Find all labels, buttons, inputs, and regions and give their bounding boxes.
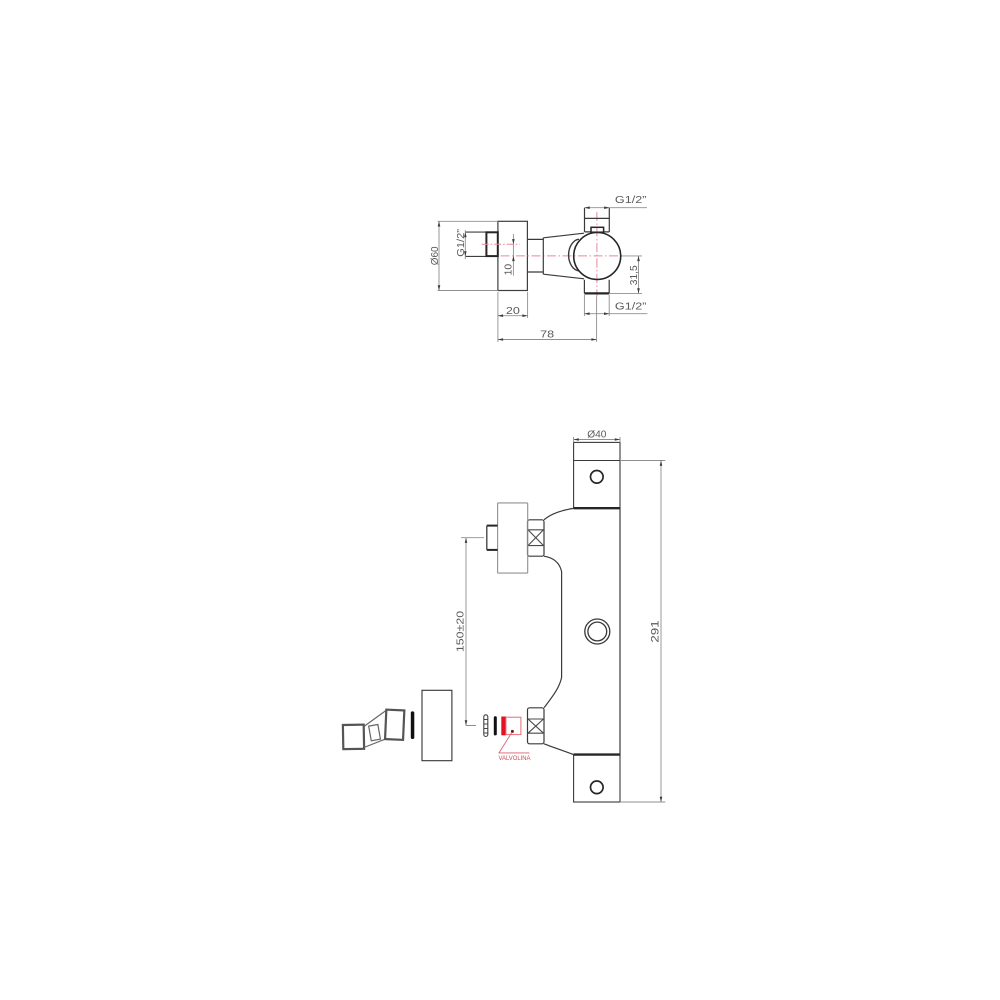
svg-text:Ø40: Ø40 [587, 429, 606, 441]
svg-text:20: 20 [506, 305, 520, 317]
svg-text:150±20: 150±20 [455, 611, 467, 652]
svg-text:VALVOLINA: VALVOLINA [499, 755, 532, 762]
svg-text:G1/2”: G1/2” [615, 194, 647, 206]
svg-text:78: 78 [540, 328, 554, 340]
svg-text:10: 10 [502, 264, 514, 276]
svg-text:G1/2”: G1/2” [455, 229, 467, 257]
svg-text:G1/2”: G1/2” [615, 300, 647, 312]
svg-text:Ø60: Ø60 [429, 246, 441, 265]
svg-text:291: 291 [649, 620, 661, 642]
svg-text:31,5: 31,5 [628, 265, 640, 285]
